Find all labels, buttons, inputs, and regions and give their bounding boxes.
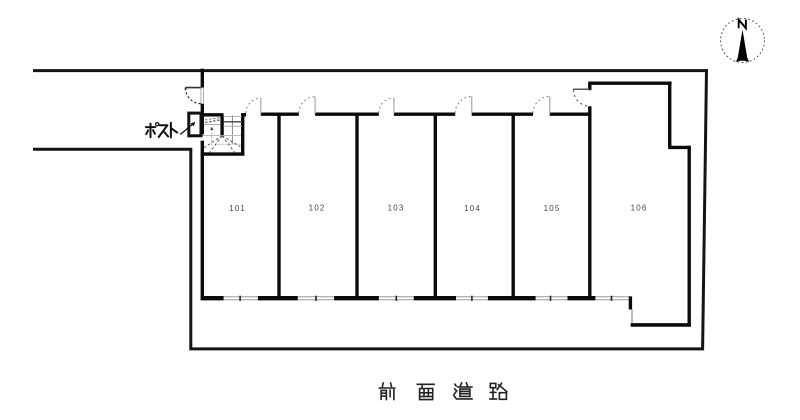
svg-text:103: 103	[388, 204, 405, 213]
svg-text:105: 105	[544, 204, 561, 213]
svg-text:101: 101	[229, 204, 246, 213]
svg-text:106: 106	[631, 204, 648, 213]
svg-text:102: 102	[309, 204, 326, 213]
svg-text:104: 104	[464, 204, 481, 213]
